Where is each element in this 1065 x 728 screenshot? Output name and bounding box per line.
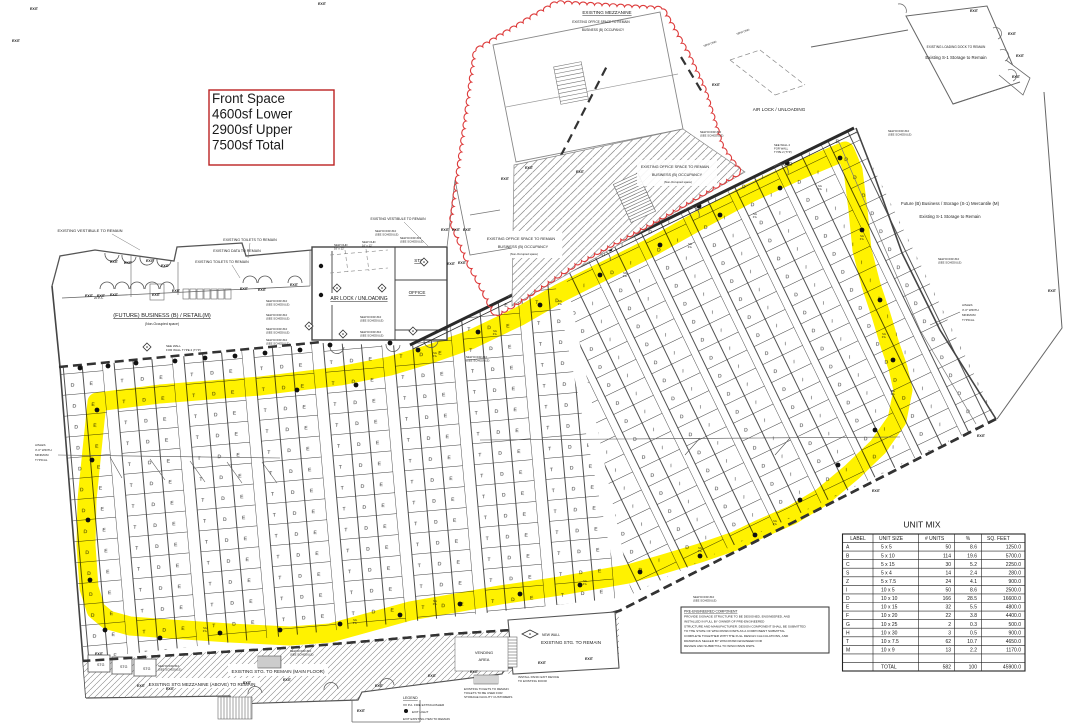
svg-text:EXIT: EXIT xyxy=(85,294,94,298)
svg-text:45900.0: 45900.0 xyxy=(1003,665,1021,671)
svg-text:EXISTING VESTIBULE TO REMAIN: EXISTING VESTIBULE TO REMAIN xyxy=(370,217,426,221)
svg-text:AISLES: AISLES xyxy=(35,443,46,447)
svg-text:EXIT: EXIT xyxy=(501,177,510,181)
svg-text:D: D xyxy=(846,596,850,602)
svg-text:EXIT: EXIT xyxy=(1016,54,1025,58)
svg-text:P.A.: P.A. xyxy=(623,274,628,278)
svg-text:REVIEW AND SUBMITTAL TO WISCON: REVIEW AND SUBMITTAL TO WISCONSIN DSPS. xyxy=(684,644,755,648)
svg-text:EXIT: EXIT xyxy=(243,681,252,685)
svg-text:P.A.: P.A. xyxy=(558,302,563,306)
svg-text:P.A.: P.A. xyxy=(860,237,865,241)
svg-text:(SEE SCHEDULE): (SEE SCHEDULE) xyxy=(693,599,717,603)
svg-text:EXIT: EXIT xyxy=(240,287,249,291)
svg-text:P.A.: P.A. xyxy=(698,549,703,553)
svg-text:(SEE SCHEDULE): (SEE SCHEDULE) xyxy=(938,261,962,265)
svg-text:62: 62 xyxy=(945,639,951,645)
svg-text:MINIMUM: MINIMUM xyxy=(35,453,49,457)
svg-text:EXIT: EXIT xyxy=(1008,32,1017,36)
svg-text:EXIT: EXIT xyxy=(452,228,461,232)
svg-text:# UNITS: # UNITS xyxy=(925,536,945,542)
svg-text:1170.0: 1170.0 xyxy=(1006,648,1021,654)
svg-text:16' x 12': 16' x 12' xyxy=(362,244,373,248)
svg-text:AIR LOCK / UNLOADING: AIR LOCK / UNLOADING xyxy=(330,296,387,302)
svg-text:280.0: 280.0 xyxy=(1008,570,1021,576)
svg-text:10 x 10: 10 x 10 xyxy=(881,596,898,602)
svg-text:P.A.: P.A. xyxy=(203,629,208,633)
svg-text:(SEE SCHEDULE): (SEE SCHEDULE) xyxy=(290,653,314,657)
svg-text:P.A.: P.A. xyxy=(753,215,758,219)
svg-text:EXIT: EXIT xyxy=(290,283,299,287)
svg-text:(SEE SCHEDULE): (SEE SCHEDULE) xyxy=(360,334,384,338)
svg-text:EXISTING OFFICE SPACE TO REMAI: EXISTING OFFICE SPACE TO REMAIN xyxy=(487,237,556,241)
svg-text:10 x 20: 10 x 20 xyxy=(881,613,898,619)
svg-text:AREA: AREA xyxy=(479,657,490,662)
svg-text:BUSINESS (B) OCCUPANCY: BUSINESS (B) OCCUPANCY xyxy=(498,245,549,249)
svg-text:EXIT: EXIT xyxy=(525,166,534,170)
svg-text:50: 50 xyxy=(945,545,951,551)
svg-text:TOTAL: TOTAL xyxy=(881,665,897,671)
svg-text:3'-0" WIDTH: 3'-0" WIDTH xyxy=(35,448,52,452)
svg-text:P.A.: P.A. xyxy=(433,354,438,358)
svg-text:EXIT: EXIT xyxy=(458,261,467,265)
svg-text:P.A.: P.A. xyxy=(882,335,887,339)
svg-text:EXISTING MEZZANINE: EXISTING MEZZANINE xyxy=(582,10,631,15)
svg-text:EXIT: EXIT xyxy=(712,83,721,87)
svg-text:10 x 5: 10 x 5 xyxy=(881,588,895,594)
svg-text:VENDING: VENDING xyxy=(475,650,493,655)
svg-text:2900sf Upper: 2900sf Upper xyxy=(212,122,293,137)
svg-text:AISLES: AISLES xyxy=(962,303,973,307)
svg-text:TYPICAL: TYPICAL xyxy=(962,318,975,322)
svg-text:EXIT: EXIT xyxy=(97,294,106,298)
svg-text:4600sf Lower: 4600sf Lower xyxy=(212,107,293,122)
svg-text:EXIT: EXIT xyxy=(166,687,175,691)
svg-text:P.A.: P.A. xyxy=(818,187,823,191)
svg-text:MINIMUM: MINIMUM xyxy=(962,313,976,317)
svg-text:3: 3 xyxy=(948,630,951,636)
svg-text:LABEL: LABEL xyxy=(850,536,866,542)
svg-text:4.1: 4.1 xyxy=(970,579,977,585)
svg-text:24: 24 xyxy=(945,579,951,585)
svg-text:T: T xyxy=(846,639,849,645)
svg-text:M: M xyxy=(846,648,850,654)
svg-text:4800.0: 4800.0 xyxy=(1006,605,1022,611)
svg-text:5 x 7.5: 5 x 7.5 xyxy=(881,579,896,585)
svg-text:(FUTURE) BUSINESS (B) / RETAI: (FUTURE) BUSINESS (B) / RETAIL(M) xyxy=(113,313,211,319)
svg-text:EXIT: EXIT xyxy=(1048,289,1057,293)
svg-text:BUSINESS (B) OCCUPANCY: BUSINESS (B) OCCUPANCY xyxy=(652,173,703,177)
svg-text:Existing S-1 Storage to Remain: Existing S-1 Storage to Remain xyxy=(925,55,987,60)
svg-text:EXIT: EXIT xyxy=(538,661,547,665)
svg-text:TO EXISTING DOOR: TO EXISTING DOOR xyxy=(518,679,548,683)
svg-text:(SEE SCHEDULE): (SEE SCHEDULE) xyxy=(266,331,290,335)
svg-text:EXIT: EXIT xyxy=(357,709,366,713)
svg-text:EXISTING OFFICE SPACE TO REMAI: EXISTING OFFICE SPACE TO REMAIN xyxy=(572,20,630,24)
svg-text:5 x 5: 5 x 5 xyxy=(881,545,892,551)
svg-text:Z: Z xyxy=(846,579,849,585)
svg-text:EXIT: EXIT xyxy=(258,288,267,292)
svg-text:16600.0: 16600.0 xyxy=(1003,596,1021,602)
svg-text:EXIT: EXIT xyxy=(146,259,155,263)
svg-text:5.5: 5.5 xyxy=(970,605,977,611)
svg-text:AIR LOCK / UNLOADING: AIR LOCK / UNLOADING xyxy=(753,107,806,112)
svg-text:NEW WALL: NEW WALL xyxy=(542,633,560,637)
svg-text:PROVIDE SIGNAGE STRUCTURE TO B: PROVIDE SIGNAGE STRUCTURE TO BE DESIGNED… xyxy=(684,615,791,619)
svg-text:EXIT: EXIT xyxy=(375,684,384,688)
svg-text:P.A.: P.A. xyxy=(891,392,896,396)
svg-text:STG: STG xyxy=(120,665,128,669)
svg-text:10 x 25: 10 x 25 xyxy=(881,622,898,628)
svg-text:EXIT: EXIT xyxy=(12,39,21,43)
svg-text:(SEE SCHEDULE): (SEE SCHEDULE) xyxy=(888,133,912,137)
svg-text:(SEE SCHEDULE): (SEE SCHEDULE) xyxy=(400,240,424,244)
svg-text:EXIT: EXIT xyxy=(95,652,104,656)
svg-text:EXIT: EXIT xyxy=(110,260,119,264)
svg-text:OFFICE: OFFICE xyxy=(409,290,426,295)
svg-text:P.A.: P.A. xyxy=(353,621,358,625)
svg-text:Existing S-1 Storage to Remain: Existing S-1 Storage to Remain xyxy=(919,214,981,219)
svg-text:8.6: 8.6 xyxy=(970,545,977,551)
svg-text:C: C xyxy=(846,562,850,568)
svg-text:13: 13 xyxy=(945,648,951,654)
svg-text:DRAWINGS SEALED BY WISCONSIN E: DRAWINGS SEALED BY WISCONSIN ENGINEER FO… xyxy=(684,639,763,643)
svg-text:4650.0: 4650.0 xyxy=(1006,639,1022,645)
svg-text:10 x 15: 10 x 15 xyxy=(881,605,898,611)
svg-text:EXIT: EXIT xyxy=(152,293,161,297)
svg-text:P.A.: P.A. xyxy=(493,332,498,336)
svg-text:2500.0: 2500.0 xyxy=(1006,588,1022,594)
svg-text:EXIT: EXIT xyxy=(977,434,986,438)
svg-text:EXIT: EXIT xyxy=(585,657,594,661)
svg-text:2: 2 xyxy=(948,622,951,628)
svg-text:5.2: 5.2 xyxy=(970,562,977,568)
svg-text:900.0: 900.0 xyxy=(1008,579,1021,585)
svg-text:(Non-Occupied space): (Non-Occupied space) xyxy=(510,252,538,256)
svg-text:3'-0" WIDTH: 3'-0" WIDTH xyxy=(962,308,979,312)
svg-text:P.A.: P.A. xyxy=(688,245,693,249)
svg-text:COMPLETE TOGETHER WITH THE FUL: COMPLETE TOGETHER WITH THE FULL DESIGN C… xyxy=(684,634,789,638)
svg-text:50: 50 xyxy=(945,588,951,594)
svg-text:(SEE SCHEDULE): (SEE SCHEDULE) xyxy=(158,668,182,672)
svg-text:4400.0: 4400.0 xyxy=(1006,613,1022,619)
svg-text:10 x 7.5: 10 x 7.5 xyxy=(881,639,899,645)
svg-text:10 x 30: 10 x 30 xyxy=(881,630,898,636)
svg-text:XX P.A. FIRE EXTINGUISHER: XX P.A. FIRE EXTINGUISHER xyxy=(403,703,445,707)
svg-text:P.A.: P.A. xyxy=(583,582,588,586)
svg-text:EXIT EXISTING ITEM TO REMAIN: EXIT EXISTING ITEM TO REMAIN xyxy=(403,717,450,721)
svg-text:EXIT: EXIT xyxy=(30,7,39,11)
svg-text:TYPICAL: TYPICAL xyxy=(35,458,48,462)
svg-text:8.6: 8.6 xyxy=(970,588,977,594)
svg-text:Front Space: Front Space xyxy=(212,91,285,106)
svg-text:5700.0: 5700.0 xyxy=(1006,553,1022,559)
svg-text:EXIT: EXIT xyxy=(463,228,472,232)
svg-text:5 x 10: 5 x 10 xyxy=(881,553,895,559)
svg-text:Future (B) Business / Storage: Future (B) Business / Storage (S-1) Merc… xyxy=(901,201,1000,206)
svg-text:582: 582 xyxy=(943,665,952,671)
svg-text:EXISTING DATA TO REMAIN: EXISTING DATA TO REMAIN xyxy=(213,249,261,253)
svg-text:EXIT: EXIT xyxy=(428,674,437,678)
svg-text:LEGEND: LEGEND xyxy=(403,696,418,700)
svg-text:INSTALLED IN FULL BY OWNER OF: INSTALLED IN FULL BY OWNER OF PRE-ENGINE… xyxy=(684,619,765,623)
svg-text:EXIT: EXIT xyxy=(172,289,181,293)
svg-text:(SEE SCHEDULE): (SEE SCHEDULE) xyxy=(360,319,384,323)
svg-text:EXIT: EXIT xyxy=(110,293,119,297)
svg-text:H: H xyxy=(846,630,850,636)
svg-text:UNIT SIZE: UNIT SIZE xyxy=(879,536,904,542)
svg-text:EXISTING VESTIBULE TO REMAIN: EXISTING VESTIBULE TO REMAIN xyxy=(58,228,123,233)
svg-text:STORAGE FACILITY CUSTOMERS: STORAGE FACILITY CUSTOMERS xyxy=(464,695,512,699)
svg-text:0.3: 0.3 xyxy=(970,622,977,628)
svg-text:F: F xyxy=(846,613,849,619)
svg-text:(SEE SCHEDULE): (SEE SCHEDULE) xyxy=(466,359,490,363)
svg-text:114: 114 xyxy=(943,553,951,559)
svg-text:G: G xyxy=(846,622,850,628)
svg-text:STG: STG xyxy=(143,667,151,671)
svg-text:EXISTING STG MEZZANINE (ABOVE): EXISTING STG MEZZANINE (ABOVE) TO REMAIN xyxy=(149,682,256,687)
svg-text:100: 100 xyxy=(969,665,978,671)
svg-text:P.A.: P.A. xyxy=(773,522,778,526)
svg-text:EXISTING TOILETS TO REMAIN: EXISTING TOILETS TO REMAIN xyxy=(223,238,277,242)
svg-text:EXIT: EXIT xyxy=(1012,75,1021,79)
svg-text:19.6: 19.6 xyxy=(967,553,977,559)
svg-text:30: 30 xyxy=(945,562,951,568)
svg-text:TO THE STATE OF WISCONSIN DSPS: TO THE STATE OF WISCONSIN DSPS AS A COMP… xyxy=(684,629,785,633)
svg-text:2.2: 2.2 xyxy=(970,648,977,654)
svg-text:P.A.: P.A. xyxy=(433,602,438,606)
svg-text:5 x 15: 5 x 15 xyxy=(881,562,895,568)
svg-text:TYPE 2 (TYP): TYPE 2 (TYP) xyxy=(774,150,792,154)
svg-text:28.5: 28.5 xyxy=(967,596,977,602)
svg-text:I: I xyxy=(846,588,847,594)
svg-text:(SEE SCHEDULE): (SEE SCHEDULE) xyxy=(700,134,724,138)
svg-text:(Non-Occupied space): (Non-Occupied space) xyxy=(145,322,179,326)
svg-text:32: 32 xyxy=(945,605,951,611)
svg-text:500.0: 500.0 xyxy=(1008,622,1021,628)
svg-text:EXISTING TOILETS TO REMAIN: EXISTING TOILETS TO REMAIN xyxy=(195,260,249,264)
svg-text:EXIT: EXIT xyxy=(872,489,881,493)
svg-text:UNIT MIX: UNIT MIX xyxy=(903,520,940,530)
svg-text:166: 166 xyxy=(943,596,952,602)
svg-text:EXIT: EXIT xyxy=(447,262,456,266)
svg-text:22: 22 xyxy=(945,613,951,619)
svg-text:EXIT LIGHT: EXIT LIGHT xyxy=(412,710,428,714)
svg-text:EXIT: EXIT xyxy=(576,170,585,174)
svg-text:EXIT: EXIT xyxy=(318,2,327,6)
svg-text:(SEE SCHEDULE): (SEE SCHEDULE) xyxy=(266,303,290,307)
svg-text:BUSINESS (B) OCCUPANCY: BUSINESS (B) OCCUPANCY xyxy=(582,28,625,32)
svg-text:EXIT: EXIT xyxy=(970,9,979,13)
svg-text:7500sf Total: 7500sf Total xyxy=(212,138,284,153)
svg-text:(SEE SCHEDULE): (SEE SCHEDULE) xyxy=(266,342,290,346)
svg-text:EXIT: EXIT xyxy=(441,228,450,232)
svg-text:STRUCTURE AND MANUFACTURER. DE: STRUCTURE AND MANUFACTURER. DESIGN COMPO… xyxy=(684,624,806,628)
svg-text:EXIT: EXIT xyxy=(470,670,479,674)
svg-text:5 x 4: 5 x 4 xyxy=(881,570,892,576)
svg-text:(SEE SCHEDULE): (SEE SCHEDULE) xyxy=(266,317,290,321)
svg-text:FOR WALL TYPE 2 (TYP): FOR WALL TYPE 2 (TYP) xyxy=(166,348,201,352)
svg-text:0.5: 0.5 xyxy=(970,630,977,636)
svg-text:EXIT: EXIT xyxy=(137,684,146,688)
svg-text:STG: STG xyxy=(97,663,105,667)
svg-text:2250.0: 2250.0 xyxy=(1006,562,1022,568)
svg-text:EXIT: EXIT xyxy=(283,678,292,682)
svg-text:EXISTING LOADING DOCK TO REMAI: EXISTING LOADING DOCK TO REMAIN xyxy=(927,45,986,49)
svg-text:PRE-ENGINEERED COMPONENT: PRE-ENGINEERED COMPONENT xyxy=(684,610,738,614)
svg-text:16' x 12': 16' x 12' xyxy=(334,247,345,251)
svg-text:%: % xyxy=(966,536,971,542)
svg-text:EXISTING STG. TO REMAIN (MAIN: EXISTING STG. TO REMAIN (MAIN FLOOR) xyxy=(232,669,325,674)
svg-text:900.0: 900.0 xyxy=(1008,630,1021,636)
svg-text:10 x 9: 10 x 9 xyxy=(881,648,895,654)
svg-text:EXISTING OFFICE SPACE TO REMAI: EXISTING OFFICE SPACE TO REMAIN xyxy=(641,165,710,169)
svg-text:EXIT: EXIT xyxy=(161,264,170,268)
svg-text:1250.0: 1250.0 xyxy=(1006,545,1022,551)
svg-text:3.8: 3.8 xyxy=(970,613,977,619)
svg-text:EXISTING STG. TO REMAIN: EXISTING STG. TO REMAIN xyxy=(541,640,601,645)
svg-text:(SEE SCHEDULE): (SEE SCHEDULE) xyxy=(375,233,399,237)
svg-text:14: 14 xyxy=(945,570,951,576)
svg-text:2.4: 2.4 xyxy=(970,570,977,576)
svg-text:(Non-Occupied space): (Non-Occupied space) xyxy=(664,180,692,184)
svg-text:10.7: 10.7 xyxy=(967,639,977,645)
svg-text:SQ. FEET: SQ. FEET xyxy=(987,536,1010,542)
svg-text:EXIT: EXIT xyxy=(124,261,133,265)
